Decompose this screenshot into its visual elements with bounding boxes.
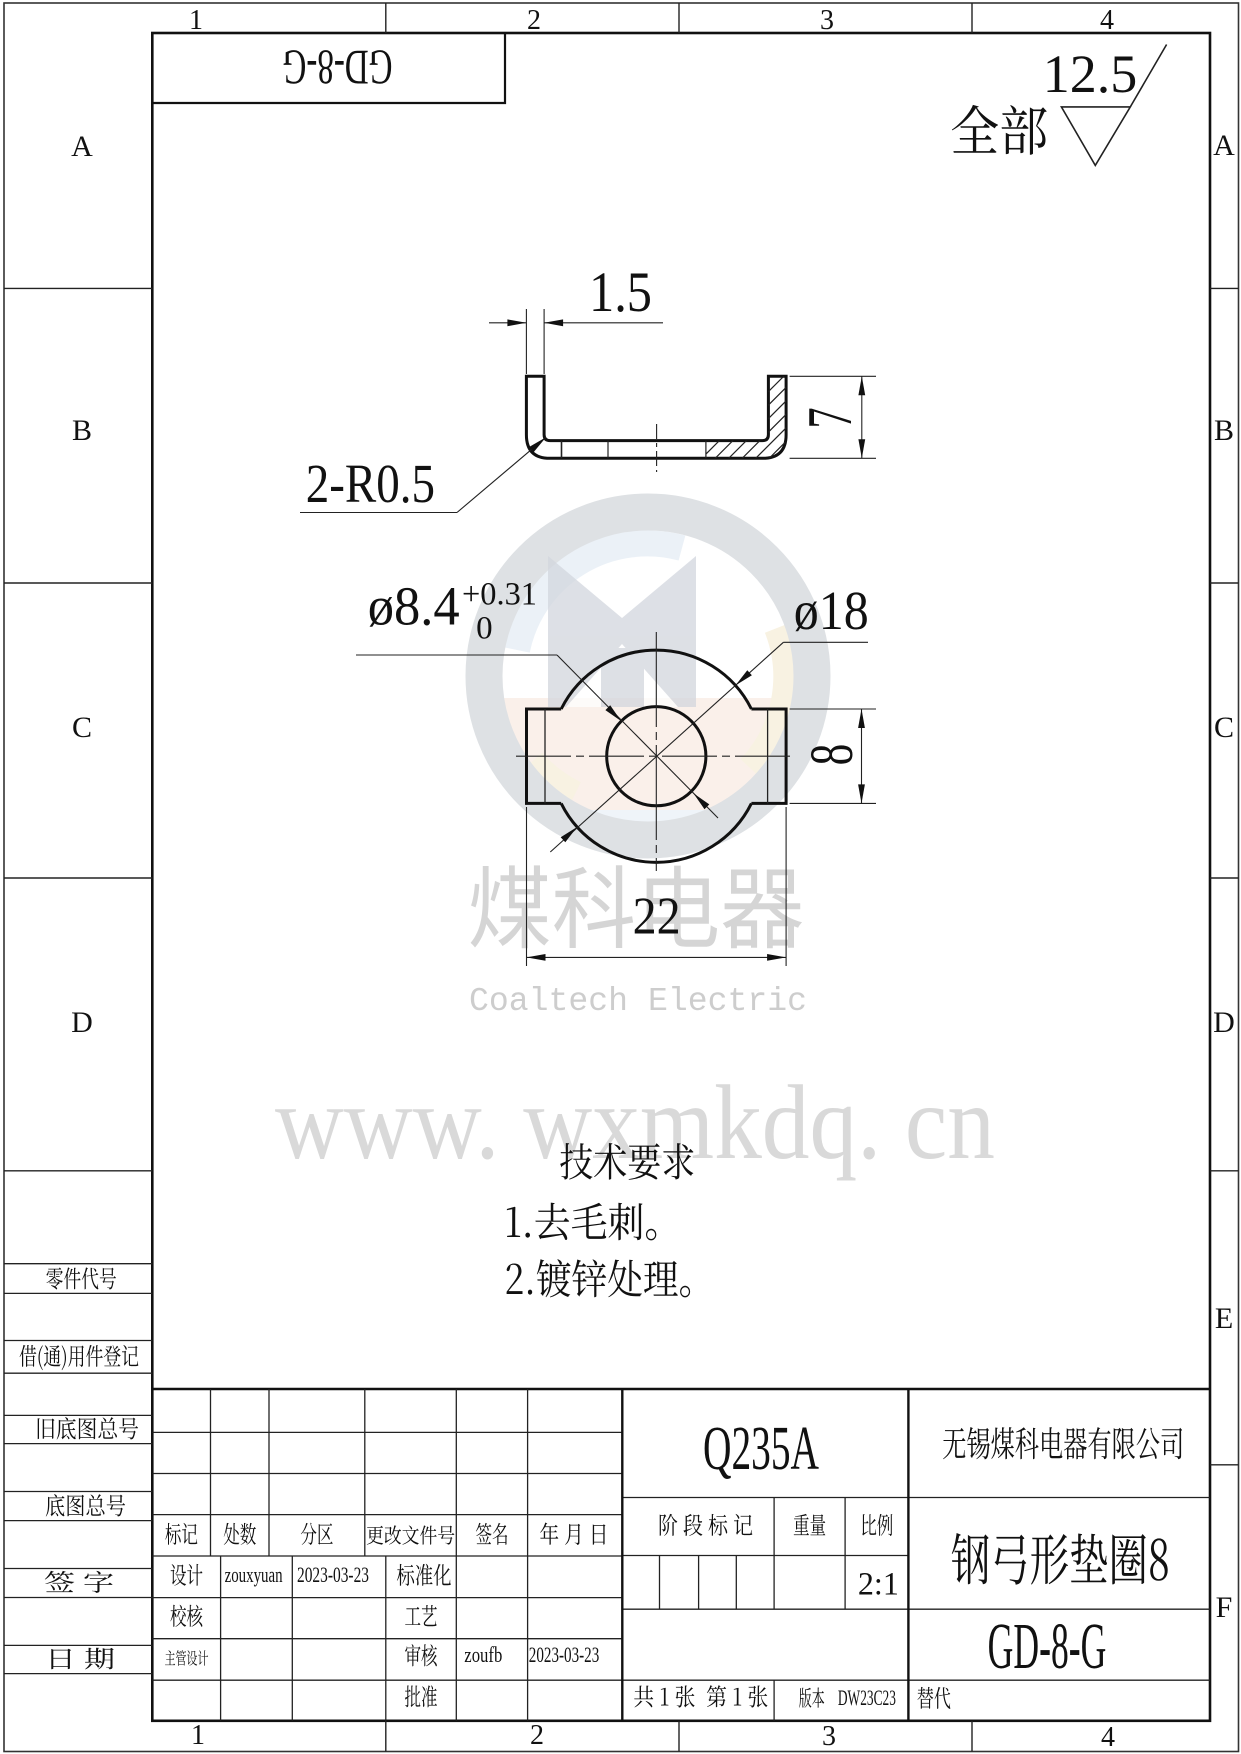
svg-text:1: 1 (191, 1720, 205, 1751)
svg-text:GD-8-G: GD-8-G (988, 1610, 1107, 1683)
svg-text:1: 1 (189, 5, 203, 36)
svg-text:zouxyuan: zouxyuan (225, 1562, 283, 1587)
svg-text:F: F (1216, 1591, 1233, 1624)
svg-text:8: 8 (799, 744, 866, 766)
svg-text:2023-03-23: 2023-03-23 (529, 1642, 600, 1667)
svg-text:3: 3 (820, 5, 834, 36)
svg-text:C: C (1214, 711, 1234, 744)
svg-text:B: B (1214, 414, 1234, 447)
svg-text:7: 7 (794, 407, 865, 428)
svg-text:www. wxmkdq. cn: www. wxmkdq. cn (275, 1064, 995, 1181)
svg-text:3: 3 (822, 1721, 836, 1752)
svg-text:C: C (72, 711, 92, 744)
svg-text:A: A (1213, 129, 1235, 162)
svg-text:+0.31: +0.31 (462, 577, 537, 613)
svg-text:DW23C23: DW23C23 (838, 1685, 896, 1710)
svg-text:2:1: 2:1 (858, 1567, 899, 1603)
svg-text:D: D (1213, 1006, 1235, 1039)
svg-text:1.5: 1.5 (589, 261, 652, 324)
svg-text:12.5: 12.5 (1043, 44, 1138, 104)
svg-text:ø8.4: ø8.4 (368, 576, 460, 637)
svg-text:2: 2 (530, 1720, 544, 1751)
svg-text:0: 0 (476, 611, 493, 647)
svg-text:zoufb: zoufb (464, 1642, 502, 1667)
svg-text:GD-8-G: GD-8-G (283, 40, 393, 96)
svg-text:2-R0.5: 2-R0.5 (306, 453, 435, 514)
svg-text:Coaltech Electric: Coaltech Electric (469, 983, 807, 1020)
svg-text:ø18: ø18 (794, 580, 869, 641)
svg-text:4: 4 (1101, 1722, 1115, 1753)
svg-text:E: E (1215, 1302, 1233, 1335)
svg-text:Q235A: Q235A (703, 1415, 819, 1483)
svg-text:2: 2 (527, 5, 541, 36)
svg-text:D: D (71, 1006, 93, 1039)
svg-text:4: 4 (1100, 5, 1114, 36)
svg-text:22: 22 (633, 888, 681, 946)
svg-text:2023-03-23: 2023-03-23 (297, 1562, 369, 1587)
svg-text:A: A (71, 130, 93, 163)
svg-text:B: B (72, 414, 92, 447)
